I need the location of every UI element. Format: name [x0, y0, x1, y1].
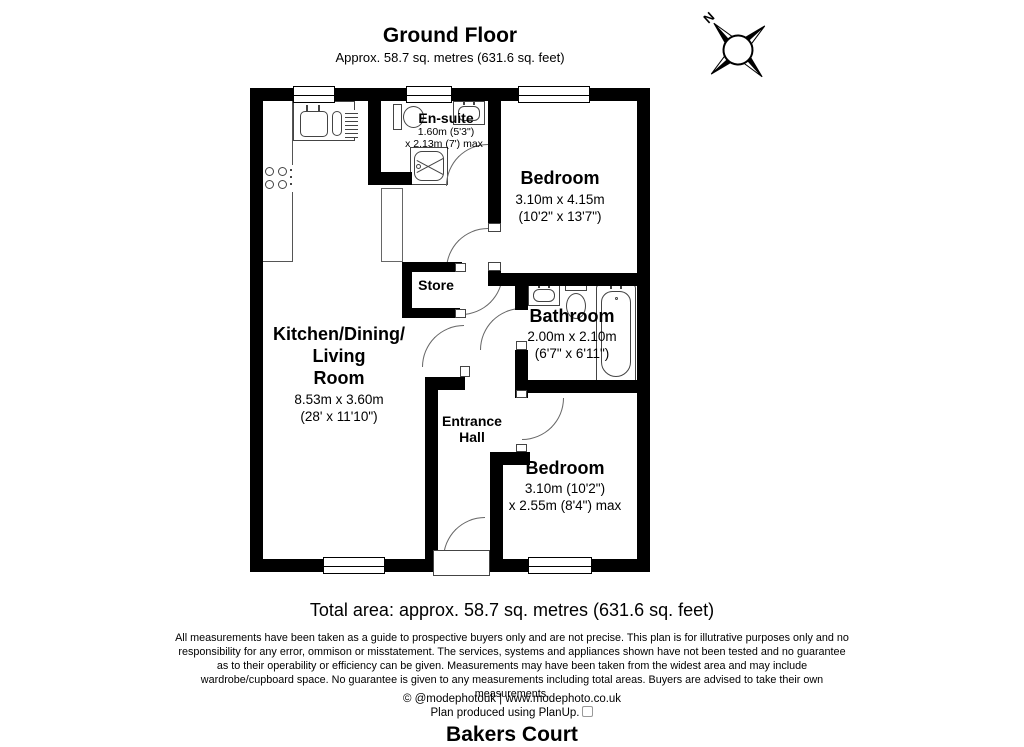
bedroom2-wall-left	[490, 452, 503, 559]
property-name: Bakers Court	[0, 723, 1024, 747]
hall-door-jamb	[460, 366, 470, 377]
exterior-wall-right	[637, 88, 650, 572]
room-dim-bedroom1-1: 3.10m x 4.15m	[515, 192, 604, 207]
room-dim-bathroom-2: (6'7" x 6'11")	[535, 346, 610, 361]
room-label-hall-1: Entrance	[442, 413, 502, 429]
bathroom-wall-top	[488, 273, 650, 286]
room-label-bedroom1: Bedroom	[520, 168, 599, 189]
ensuite-toilet-icon	[393, 104, 402, 130]
room-label-kitchen-3: Room	[314, 368, 365, 389]
room-dim-bathroom-1: 2.00m x 2.10m	[527, 329, 616, 344]
credit-line-1: © @modephotouk | www.modephoto.co.uk	[0, 693, 1024, 705]
room-dim-bedroom2-1: 3.10m (10'2")	[525, 481, 605, 496]
room-dim-ensuite-2: x 2.13m (7') max	[405, 138, 483, 150]
bedroom1-wall-left	[488, 101, 501, 223]
room-label-ensuite: En-suite	[418, 110, 473, 126]
exterior-wall-left	[250, 88, 263, 572]
bedroom1-door-jamb-bottom	[488, 262, 501, 271]
page-subtitle: Approx. 58.7 sq. metres (631.6 sq. feet)	[250, 50, 650, 65]
room-label-hall-2: Hall	[459, 429, 485, 445]
bedroom2-door-jamb-bottom	[516, 444, 527, 452]
credit-line-2: Plan produced using PlanUp.	[0, 706, 1024, 719]
room-label-bathroom: Bathroom	[530, 306, 615, 327]
entrance-door-opening	[435, 558, 488, 573]
window-icon	[528, 557, 592, 574]
room-label-kitchen-1: Kitchen/Dining/	[273, 324, 405, 345]
store-door-jamb-bottom	[455, 309, 466, 318]
kitchen-sink-icon	[293, 101, 355, 141]
bedroom2-door-jamb-top	[516, 390, 527, 398]
store-wall-bottom	[402, 308, 460, 318]
bathroom-wall-bottom	[525, 380, 650, 393]
store-door-jamb-top	[455, 263, 466, 272]
disclaimer-paragraph: All measurements have been taken as a gu…	[172, 631, 852, 701]
floorplan: En-suite 1.60m (5'3") x 2.13m (7') max B…	[250, 88, 650, 572]
shower-icon	[410, 147, 448, 185]
hob-icon	[264, 165, 293, 192]
ensuite-door-arc-icon	[446, 144, 488, 186]
window-icon	[293, 86, 335, 103]
room-dim-bedroom1-2: (10'2" x 13'7")	[518, 209, 601, 224]
bathroom-basin-icon	[528, 284, 560, 306]
room-dim-kitchen-1: 8.53m x 3.60m	[294, 392, 383, 407]
bathroom-door-jamb	[516, 341, 527, 350]
floorplan-page: { "header": { "title": "Ground Floor", "…	[0, 0, 1024, 745]
compass-rose-icon: N	[692, 0, 784, 92]
living-room-door-arc-icon	[422, 325, 464, 367]
bedroom2-door-arc-icon	[522, 398, 564, 440]
planup-credit-text: Plan produced using PlanUp.	[431, 707, 580, 719]
room-dim-kitchen-2: (28' x 11'10")	[300, 409, 377, 424]
hall-wall-left	[425, 377, 438, 559]
disclaimer-text: All measurements have been taken as a gu…	[0, 631, 1024, 701]
planup-logo-icon	[582, 706, 593, 717]
room-label-bedroom2: Bedroom	[525, 458, 604, 479]
window-icon	[518, 86, 590, 103]
room-dim-ensuite-1: 1.60m (5'3")	[418, 126, 475, 138]
room-dim-bedroom2-2: x 2.55m (8'4") max	[509, 498, 621, 513]
page-title: Ground Floor	[250, 24, 650, 48]
window-icon	[406, 86, 452, 103]
ensuite-wall-bottom	[368, 172, 412, 185]
window-icon	[323, 557, 385, 574]
cupboard	[381, 188, 403, 262]
total-area-text: Total area: approx. 58.7 sq. metres (631…	[0, 600, 1024, 621]
room-label-store: Store	[418, 277, 454, 293]
room-label-kitchen-2: Living	[313, 346, 366, 367]
bathroom-wall-left-upper	[515, 286, 528, 310]
bedroom1-door-jamb-top	[488, 223, 501, 232]
